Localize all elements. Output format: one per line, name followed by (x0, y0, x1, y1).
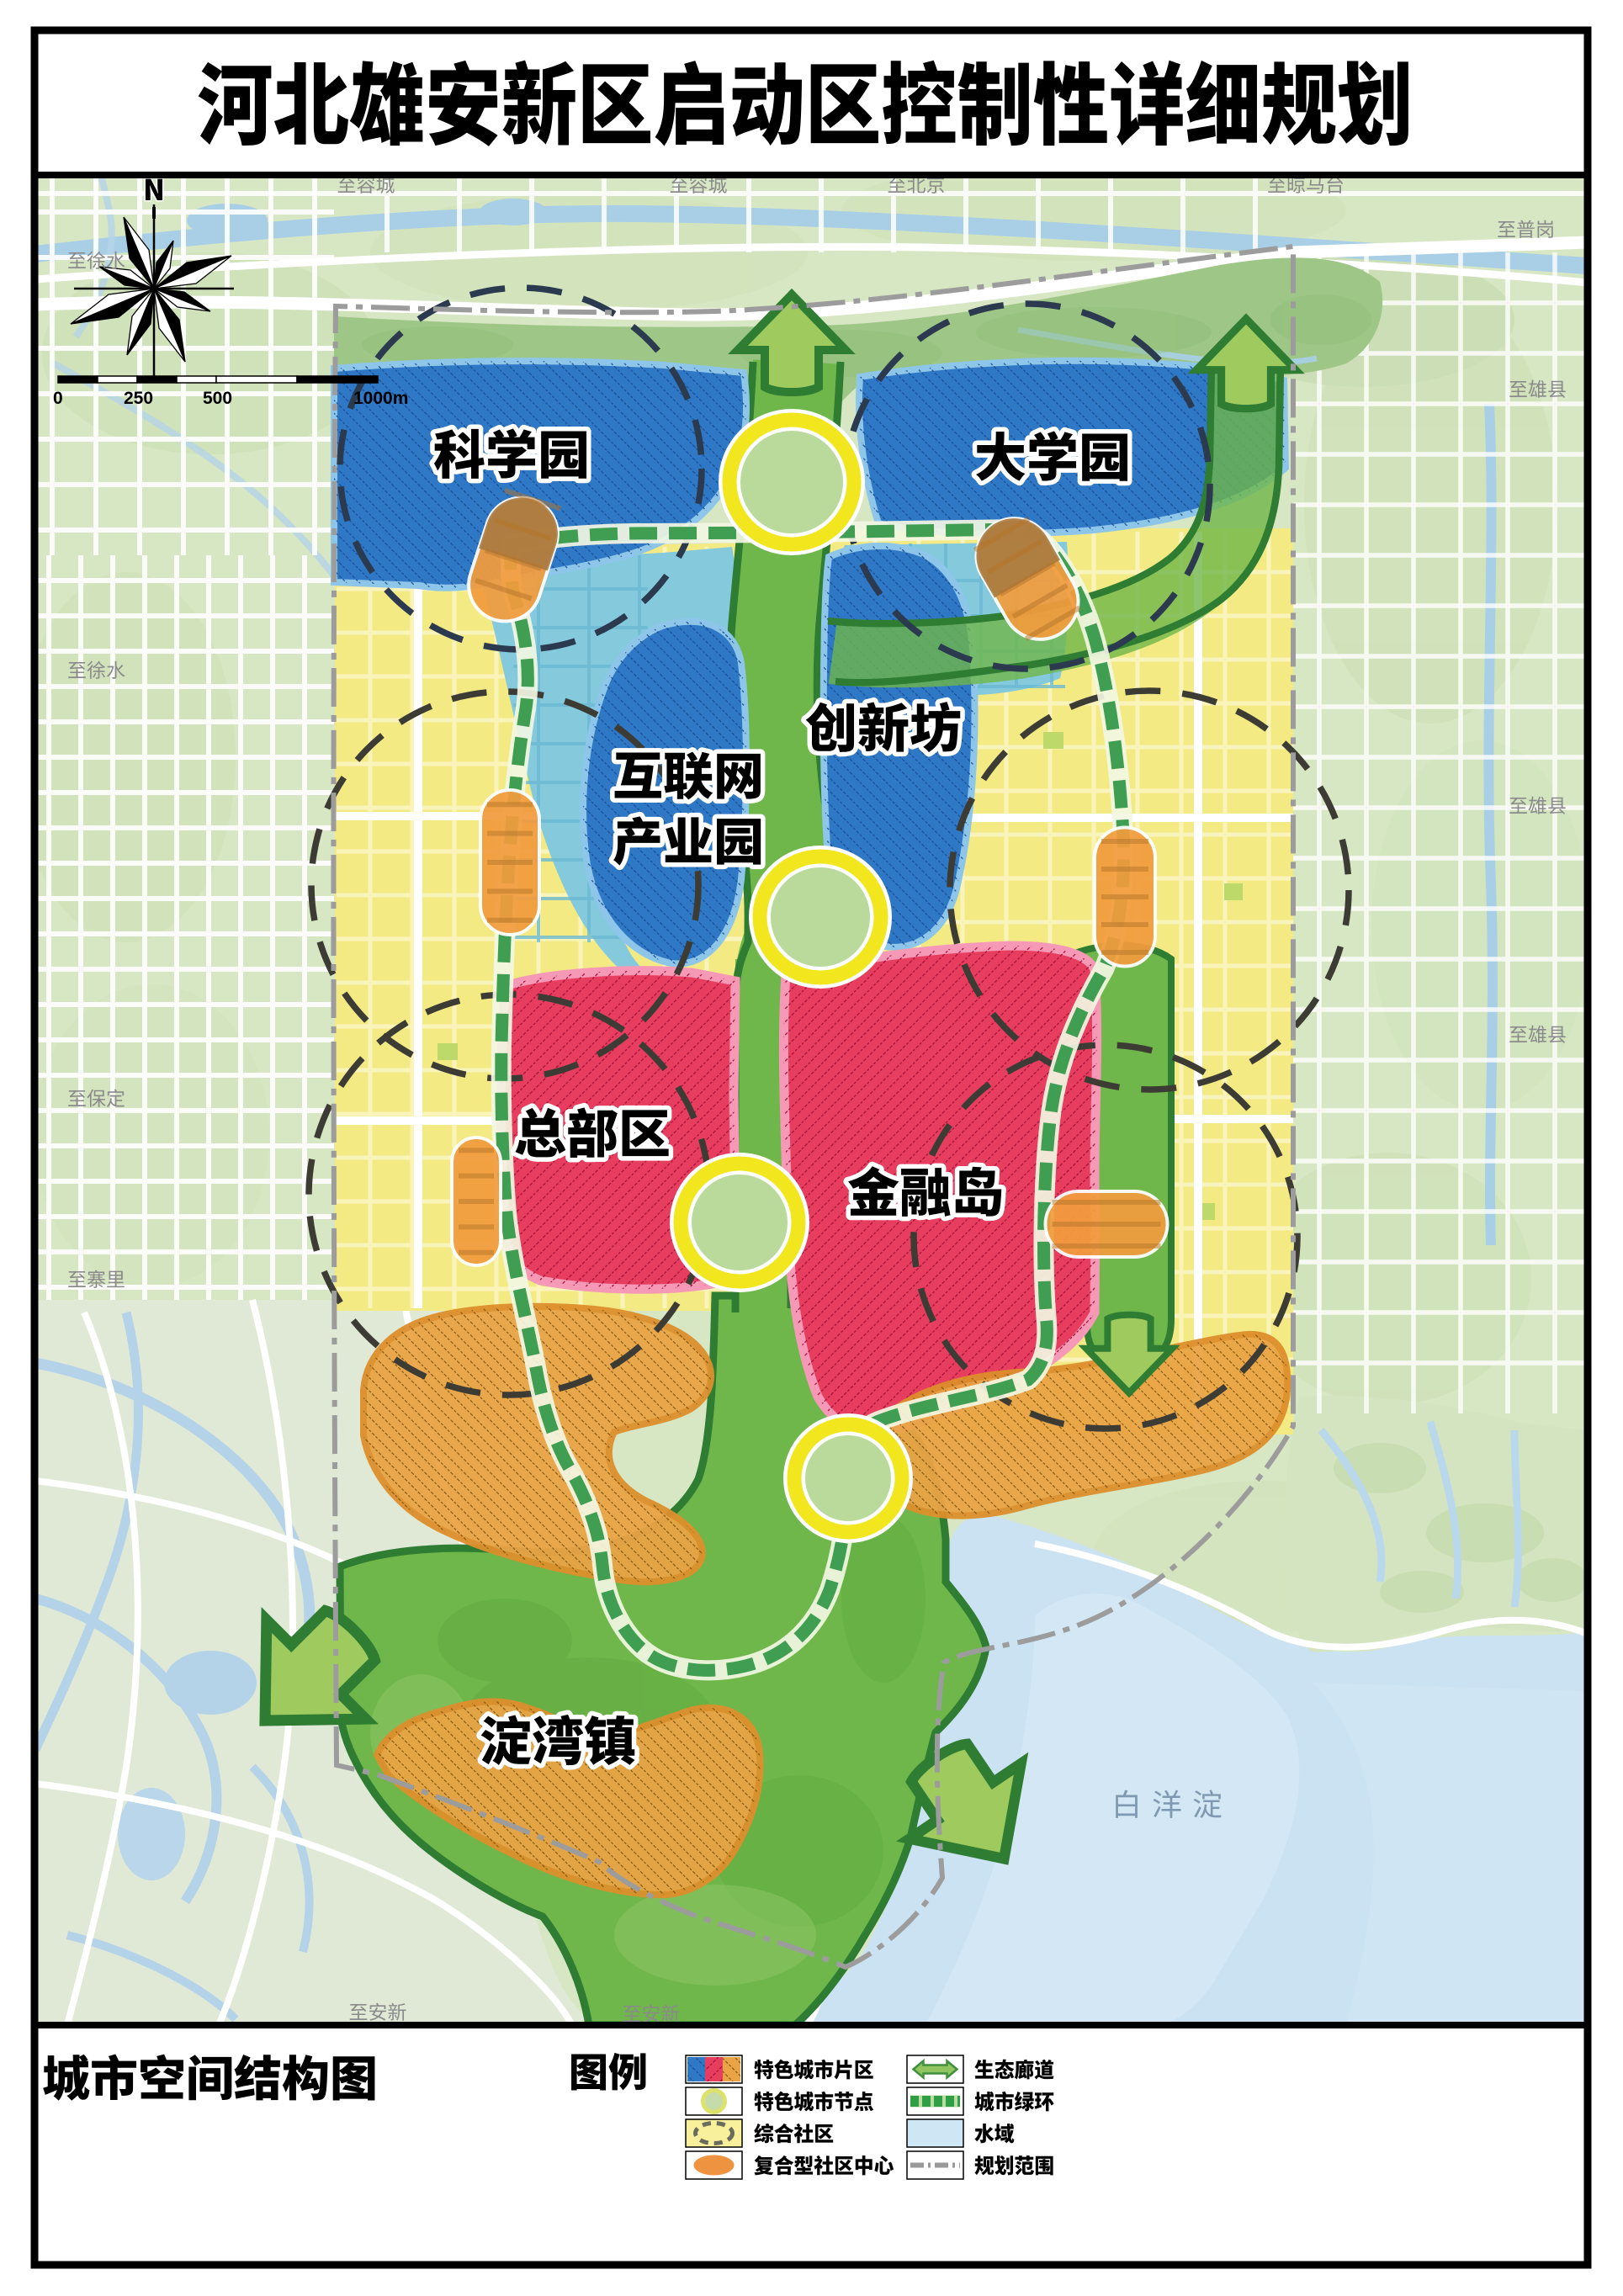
svg-text:500: 500 (203, 389, 232, 408)
svg-text:250: 250 (124, 389, 153, 408)
svg-text:1000m: 1000m (353, 389, 408, 408)
svg-text:0: 0 (53, 389, 63, 408)
